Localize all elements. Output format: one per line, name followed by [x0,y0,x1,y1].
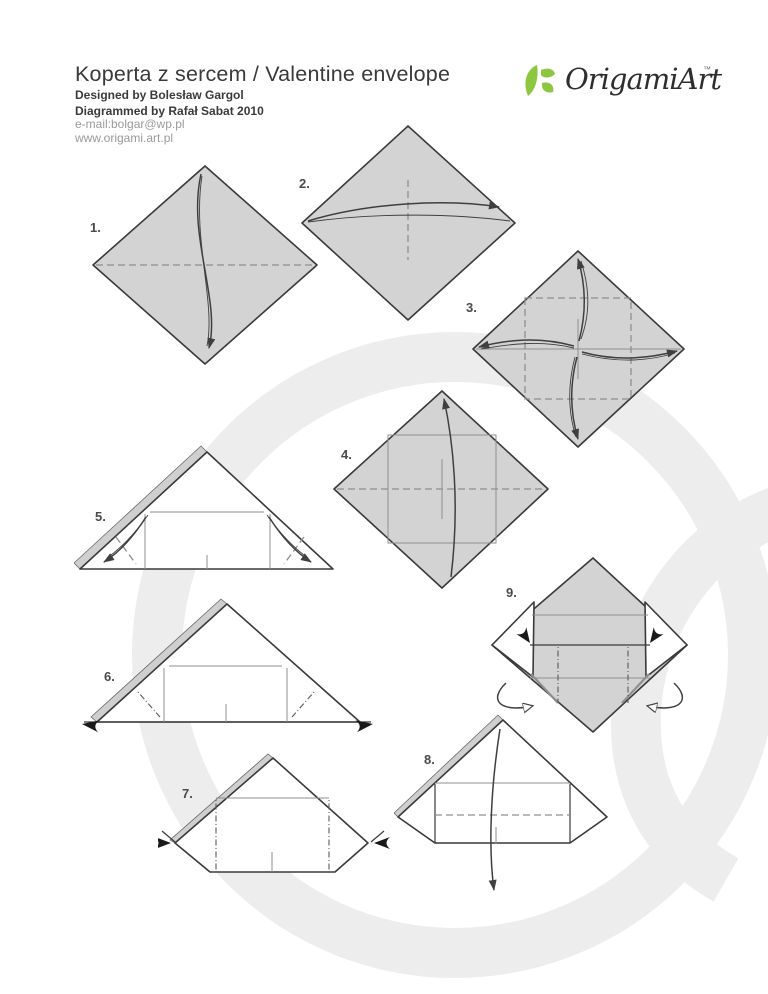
leaf-logo-icon [521,60,565,104]
step-6-diagram [78,596,378,738]
origamiart-logo: OrigamiArt ™ [521,60,731,106]
page-title: Koperta z sercem / Valentine envelope [75,62,535,87]
diagrammed-by-line: Diagrammed by Rafał Sabat 2010 [75,105,535,119]
step-1-diagram [88,158,322,372]
origami-instruction-page: Koperta z sercem / Valentine envelope De… [0,0,768,994]
brand-name: OrigamiArt [565,62,721,96]
designed-by-line: Designed by Bolesław Gargol [75,89,535,103]
step-5-diagram [74,443,346,578]
trademark-symbol: ™ [703,65,711,74]
step-7-diagram [158,751,392,881]
step-9-diagram [484,548,697,744]
